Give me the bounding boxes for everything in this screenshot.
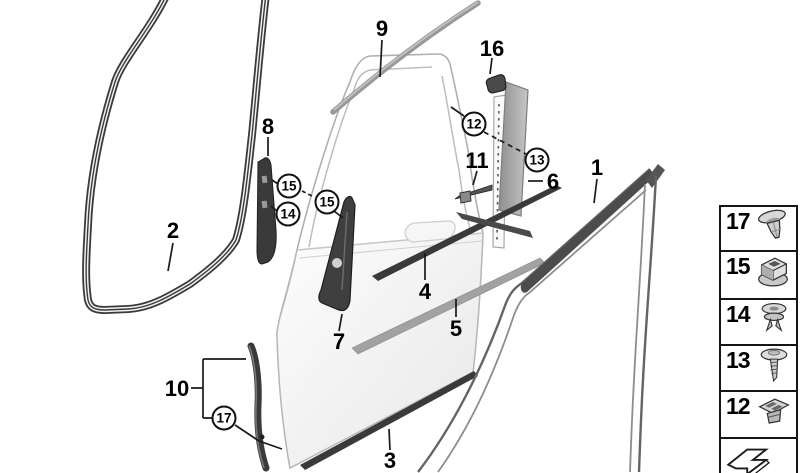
clip-grommet-icon xyxy=(752,391,794,438)
square-grommet-icon xyxy=(752,252,794,299)
legend-item-12: 12 xyxy=(719,390,798,439)
legend-number: 14 xyxy=(726,301,750,328)
part-label-5: 5 xyxy=(450,316,462,341)
svg-text:7: 7 xyxy=(333,329,345,354)
svg-text:12: 12 xyxy=(466,117,481,132)
part-label-2: 2 xyxy=(167,218,179,243)
svg-text:16: 16 xyxy=(480,36,504,61)
legend-number: 15 xyxy=(726,253,750,280)
svg-text:1: 1 xyxy=(591,155,603,180)
part-label-16: 16 xyxy=(480,36,504,61)
svg-text:15: 15 xyxy=(319,195,335,210)
part-2-door-seal xyxy=(86,0,266,310)
svg-text:6: 6 xyxy=(547,169,559,194)
svg-text:17: 17 xyxy=(216,411,231,426)
fasteners-legend: 17 15 xyxy=(719,205,798,473)
direction-arrow-icon xyxy=(721,442,796,473)
svg-text:8: 8 xyxy=(262,114,274,139)
svg-text:13: 13 xyxy=(529,153,545,168)
push-rivet-icon xyxy=(754,299,794,346)
legend-item-direction xyxy=(719,437,798,473)
legend-item-15: 15 xyxy=(719,250,798,300)
svg-text:10: 10 xyxy=(165,376,189,401)
part-label-8: 8 xyxy=(262,114,274,139)
legend-item-17: 17 xyxy=(719,205,798,252)
part-8-triangle-trim xyxy=(257,158,276,264)
legend-number: 17 xyxy=(726,208,750,235)
legend-item-13: 13 xyxy=(719,344,798,392)
parts-diagram: 916821161745103121315151417 17 15 xyxy=(0,0,800,473)
part-label-3: 3 xyxy=(384,448,396,473)
expanding-rivet-icon xyxy=(752,206,794,251)
part-callout-14: 14 xyxy=(277,203,300,226)
part-label-4: 4 xyxy=(419,279,432,304)
svg-text:4: 4 xyxy=(419,279,432,304)
washer-screw-icon xyxy=(754,344,794,393)
parts-diagram-drawing: 916821161745103121315151417 xyxy=(0,0,800,473)
svg-text:5: 5 xyxy=(450,316,462,341)
legend-number: 13 xyxy=(726,347,750,374)
svg-text:2: 2 xyxy=(167,218,179,243)
part-callout-17: 17 xyxy=(213,407,236,430)
part-callout-12: 12 xyxy=(463,113,486,136)
part-callout-15: 15 xyxy=(278,175,301,198)
part-label-1: 1 xyxy=(591,155,603,180)
svg-text:3: 3 xyxy=(384,448,396,473)
part-16-clip xyxy=(485,74,507,94)
svg-text:9: 9 xyxy=(376,16,388,41)
part-label-7: 7 xyxy=(333,329,345,354)
part-label-6: 6 xyxy=(547,169,559,194)
svg-text:11: 11 xyxy=(465,148,488,173)
part-callout-15: 15 xyxy=(316,191,339,214)
legend-number: 12 xyxy=(726,393,750,420)
svg-text:14: 14 xyxy=(280,207,296,222)
part-label-9: 9 xyxy=(376,16,388,41)
part-label-11: 11 xyxy=(465,148,488,173)
part-label-10: 10 xyxy=(165,376,189,401)
part-callout-13: 13 xyxy=(526,149,549,172)
legend-item-14: 14 xyxy=(719,298,798,346)
svg-text:15: 15 xyxy=(281,179,297,194)
part-10-edge-strip xyxy=(249,346,266,468)
